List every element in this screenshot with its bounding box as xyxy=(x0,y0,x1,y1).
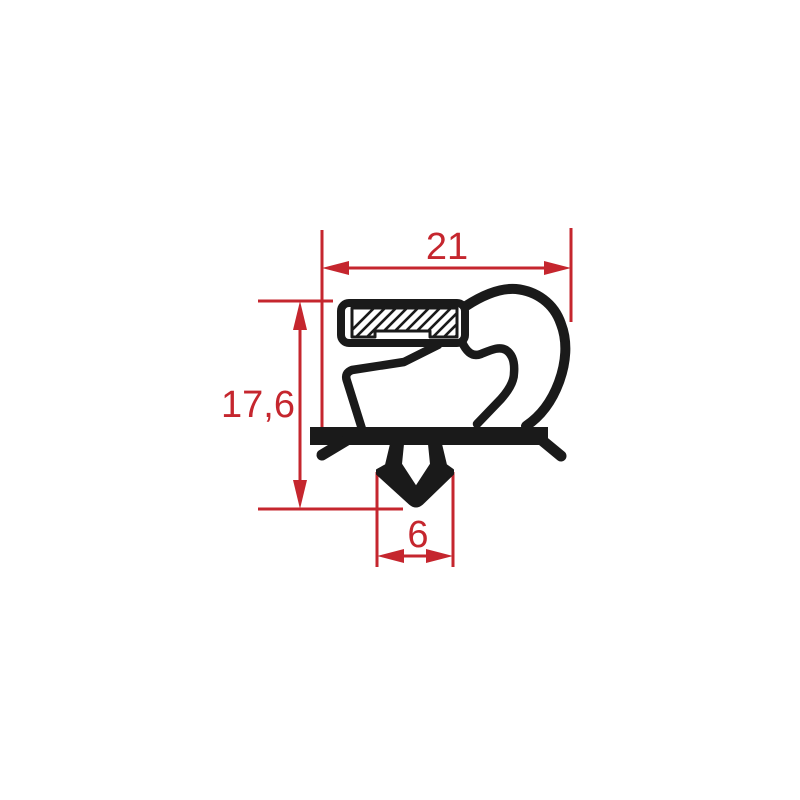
membrane-web xyxy=(346,345,438,429)
height-arrow-bottom xyxy=(293,480,307,509)
right-lip xyxy=(538,437,561,456)
foot-arrow-left xyxy=(377,549,404,563)
gasket-profile xyxy=(311,289,565,507)
height-dimension-label: 17,6 xyxy=(221,384,295,426)
width-dimension-label: 21 xyxy=(426,226,468,268)
width-arrow-left xyxy=(322,261,349,275)
inner-wall xyxy=(462,342,514,424)
technical-drawing: 21 17,6 6 xyxy=(0,0,800,800)
foot-dimension-label: 6 xyxy=(407,514,428,556)
width-arrow-right xyxy=(544,261,571,275)
height-arrow-top xyxy=(293,301,307,330)
foot-arrow-right xyxy=(426,549,453,563)
anchor-barb xyxy=(377,444,453,507)
gasket-profile-diagram: 21 17,6 6 xyxy=(0,0,800,800)
